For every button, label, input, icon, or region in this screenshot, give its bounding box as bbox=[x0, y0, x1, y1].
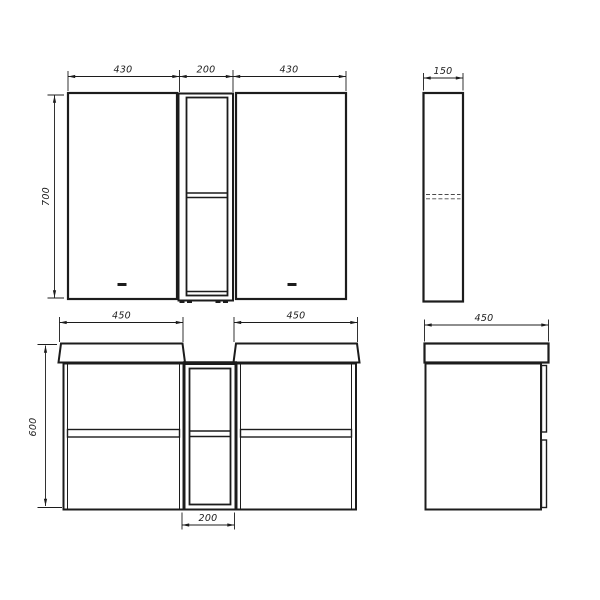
dimension-label-vanity-right-width: 450 bbox=[286, 311, 305, 322]
technical-drawing: 430 200 430 700 150 bbox=[0, 0, 600, 600]
shelf-foot bbox=[187, 301, 192, 304]
shelf-foot bbox=[180, 301, 185, 304]
shelf-foot bbox=[223, 301, 228, 304]
dimension-label-vanity-left-width: 450 bbox=[112, 311, 131, 322]
dimension-label-vanity-depth: 450 bbox=[474, 313, 493, 324]
dimension-label-mirror-depth: 150 bbox=[433, 66, 452, 77]
mirror-left-handle bbox=[118, 283, 127, 286]
shelf-foot bbox=[216, 301, 221, 304]
dimension-label-mirror-height: 700 bbox=[41, 187, 52, 206]
dimension-label-mirror-left-width: 430 bbox=[113, 65, 132, 76]
dimension-label-mirror-center-width: 200 bbox=[196, 65, 215, 76]
dimension-label-vanity-height: 600 bbox=[28, 417, 39, 436]
dimension-label-mirror-right-width: 430 bbox=[279, 65, 298, 76]
mirror-right-handle bbox=[288, 283, 297, 286]
dimension-label-vanity-center-width: 200 bbox=[198, 513, 217, 524]
